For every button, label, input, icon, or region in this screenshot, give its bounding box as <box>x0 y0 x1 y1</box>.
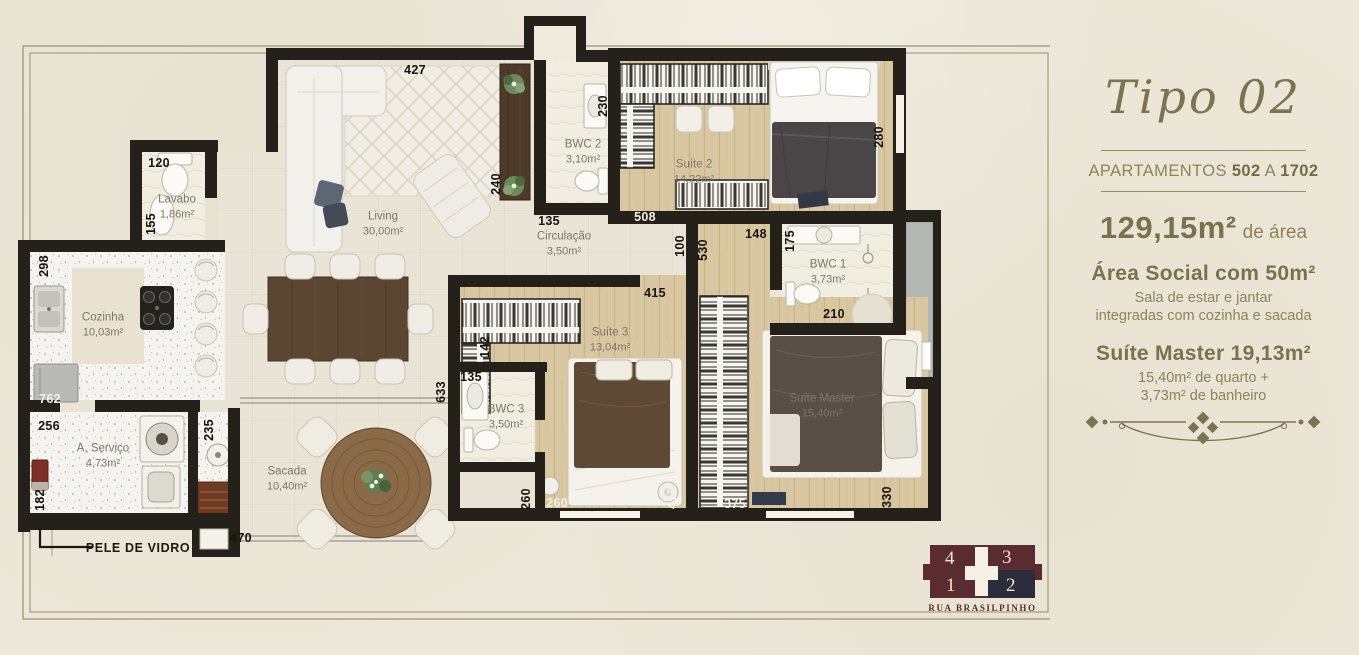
water-heater-band <box>32 482 48 490</box>
unit-number: 4 <box>945 549 955 568</box>
unit-number: 3 <box>1002 548 1012 567</box>
total-area-suffix: de área <box>1243 222 1307 243</box>
laundry-sink <box>142 466 180 508</box>
fridge <box>34 364 78 402</box>
ottoman <box>708 106 734 132</box>
social-area-heading: Área Social com 50m² <box>1048 262 1359 286</box>
sideboard <box>500 64 530 200</box>
key-plan-core <box>965 566 998 580</box>
info-panel: Tipo 02 APARTAMENTOS 502 A 1702 129,15m²… <box>1048 0 1359 655</box>
sink <box>150 195 174 235</box>
floor-mat <box>752 492 786 505</box>
social-line2: integradas com cozinha e sacada <box>1048 307 1359 325</box>
washer <box>140 416 184 462</box>
unit-number: 1 <box>946 576 956 595</box>
master-suite-heading: Suíte Master 19,13m² <box>1048 342 1359 366</box>
apartments-range: APARTAMENTOS 502 A 1702 <box>1048 162 1359 181</box>
social-line1: Sala de estar e jantar <box>1048 289 1359 307</box>
cooktop <box>140 286 174 330</box>
apartments-connector: A <box>1265 162 1276 180</box>
suite-line2: 3,73m² de banheiro <box>1048 387 1359 405</box>
social-area-description: Sala de estar e jantar integradas com co… <box>1048 289 1359 325</box>
master-wardrobe <box>700 296 748 508</box>
apartments-prefix: APARTAMENTOS <box>1089 162 1227 180</box>
key-plan: 4 3 1 2 RUA BRASILPINHO <box>922 545 1043 613</box>
glass-pointer <box>40 528 92 547</box>
key-plan-tab <box>923 564 930 580</box>
suite-line1: 15,40m² de quarto + <box>1048 369 1359 387</box>
total-area: 129,15m²de área <box>1048 210 1359 246</box>
key-plan-body: 4 3 1 2 <box>930 545 1035 598</box>
plan-type-title: Tipo 02 <box>1048 70 1359 124</box>
divider <box>1101 150 1306 151</box>
apartments-to: 1702 <box>1280 162 1318 180</box>
kitchen-sink <box>34 286 64 332</box>
unit-number: 2 <box>1006 576 1016 595</box>
ornament-divider <box>1078 408 1328 452</box>
total-area-value: 129,15m² <box>1100 210 1237 245</box>
suite2-bed <box>768 60 880 204</box>
ottoman <box>676 106 702 132</box>
apartments-from: 502 <box>1232 162 1261 180</box>
divider <box>1101 191 1306 192</box>
master-suite-description: 15,40m² de quarto + 3,73m² de banheiro <box>1048 369 1359 405</box>
key-plan-tab <box>1035 564 1042 580</box>
street-label: RUA BRASILPINHO <box>922 603 1043 613</box>
floor-plan <box>0 0 1050 655</box>
dining-table <box>268 277 408 361</box>
page: PELE DE VIDRO Lavabo1,86m²Living30,00m²C… <box>0 0 1359 655</box>
